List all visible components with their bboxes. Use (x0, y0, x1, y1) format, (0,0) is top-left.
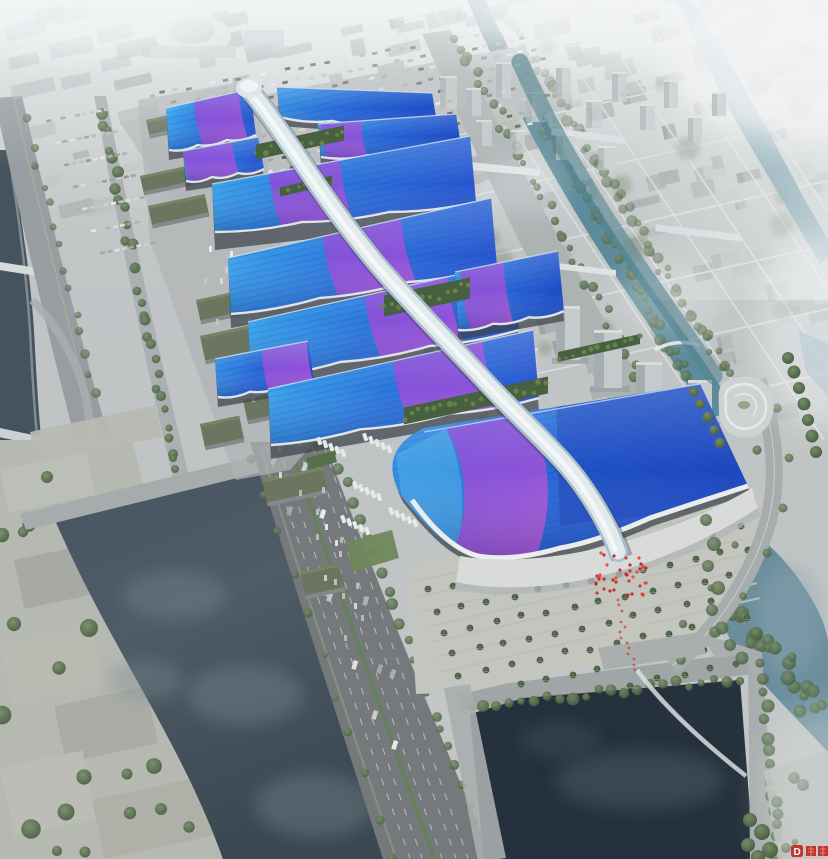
svg-text:D: D (794, 847, 801, 858)
